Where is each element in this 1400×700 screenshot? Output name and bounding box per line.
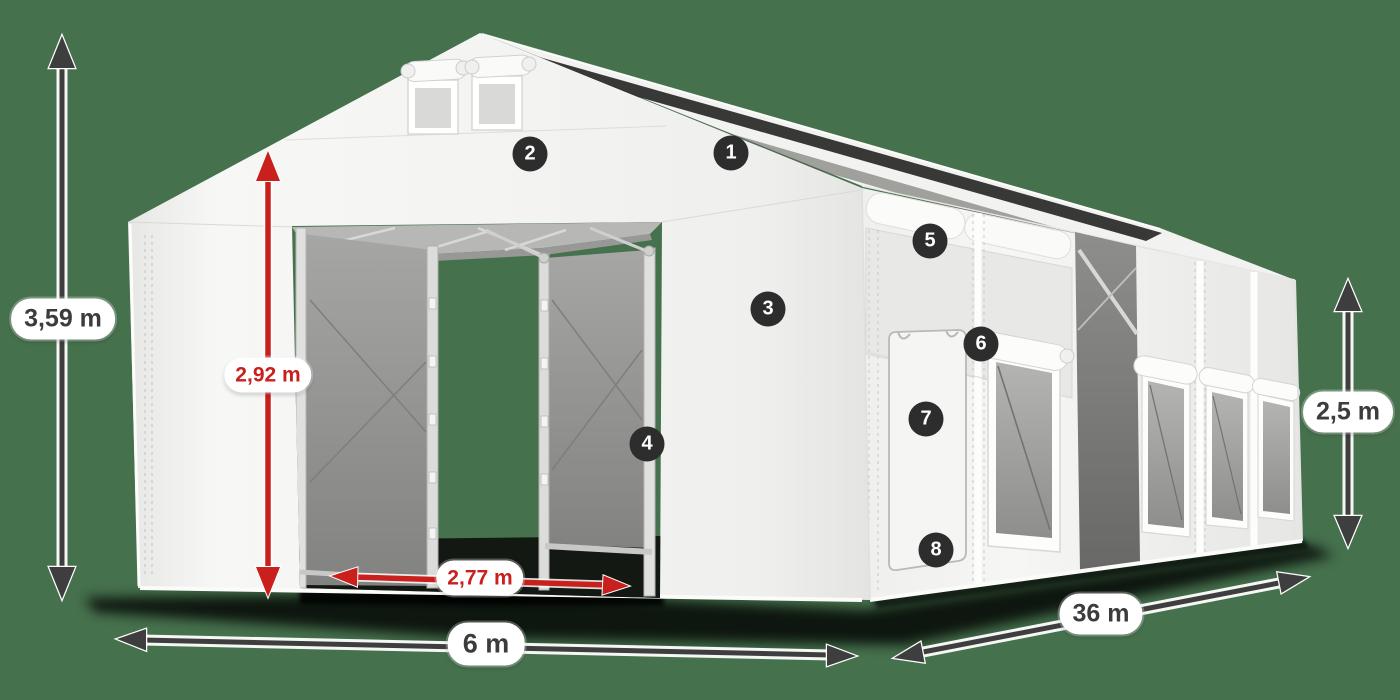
callout-badge-5: 5 [913,224,948,259]
length-value: 36 m [1073,600,1130,628]
callout-badge-6: 6 [964,327,999,362]
entrance-width-value: 2,77 m [447,567,512,590]
total-height-value: 3,59 m [24,305,102,333]
callout-badge-7: 7 [909,402,944,437]
entrance-height-value: 2,92 m [235,364,300,387]
total-height-label: 3,59 m [11,299,115,340]
callout-badge-2: 2 [513,137,548,172]
length-label: 36 m [1060,594,1143,635]
side-window-2 [1132,354,1199,537]
callout-number: 3 [762,298,773,321]
callout-number: 2 [524,143,535,166]
entrance-left-gate [296,228,438,588]
callout-number: 1 [725,142,736,165]
width-label: 6 m [448,623,525,666]
callout-badge-3: 3 [751,292,786,327]
callout-number: 7 [920,408,931,431]
callout-number: 6 [975,333,986,356]
callout-badge-8: 8 [919,533,954,568]
entrance-height-label: 2,92 m [224,358,311,393]
entrance-width-label: 2,77 m [436,561,523,596]
callout-number: 5 [924,230,935,253]
entrance-opening [292,222,662,602]
side-open-section [1075,232,1140,571]
side-window-1 [977,330,1074,552]
side-height-label: 2,5 m [1303,392,1393,433]
callout-number: 4 [641,433,652,456]
tent-dimension-diagram: 3,59 m 2,92 m 2,77 m 6 m 36 m 2,5 m 1 2 … [0,0,1400,700]
tent-illustration [0,0,1400,700]
side-window-4 [1251,377,1301,521]
callout-badge-1: 1 [714,136,749,171]
width-value: 6 m [463,629,510,659]
side-height-value: 2,5 m [1316,398,1380,426]
callout-badge-4: 4 [630,427,665,462]
callout-number: 8 [930,539,941,562]
side-window-3 [1198,366,1256,529]
